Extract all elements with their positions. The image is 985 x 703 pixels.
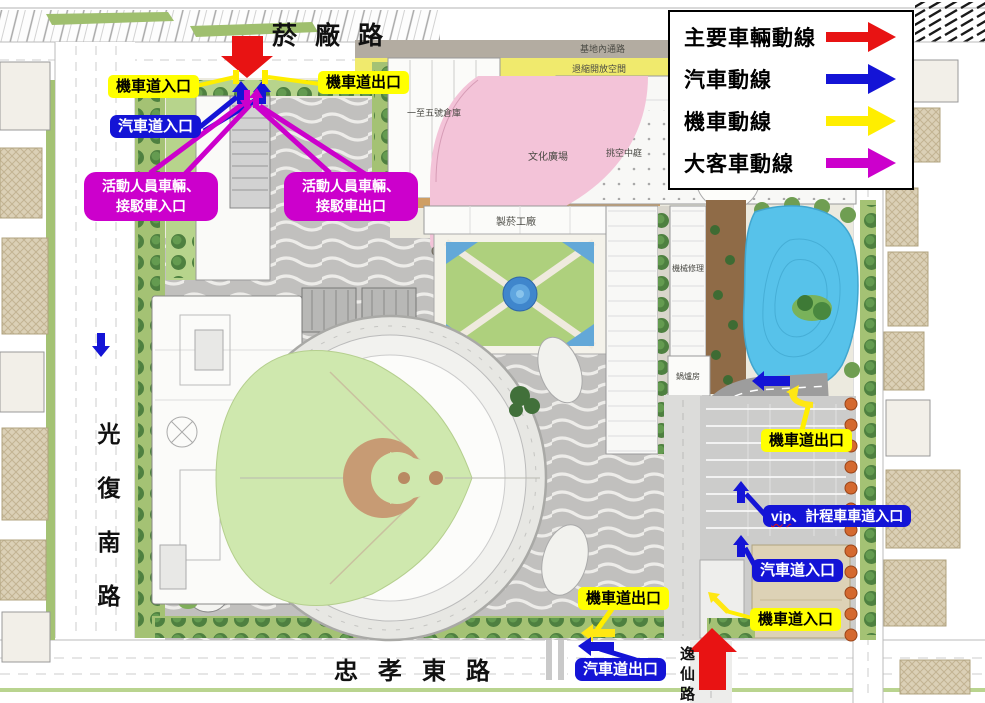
legend-row-motorcycle: 機車動線 xyxy=(684,106,898,136)
bus-exit-line1: 活動人員車輛、 xyxy=(302,178,400,194)
callout-east-moto-entry: 機車道入口 xyxy=(750,608,841,631)
vip-word: vip xyxy=(771,508,791,524)
label-atrium: 挑空中庭 xyxy=(606,146,642,159)
callout-south-car-exit: 汽車道出口 xyxy=(575,658,666,681)
legend-row-bus: 大客車動線 xyxy=(684,148,898,178)
callout-top-moto-entry: 機車道入口 xyxy=(108,75,199,98)
callout-east-car-entry: 汽車道入口 xyxy=(752,559,843,582)
red-arrow-icon xyxy=(826,22,898,52)
road-label-southeast: 逸仙路 xyxy=(676,646,697,703)
terrace-deck xyxy=(706,200,746,394)
label-boiler-room: 鍋爐房 xyxy=(676,371,700,382)
yellow-arrow-icon xyxy=(826,106,898,136)
bus-entry-line1: 活動人員車輛、 xyxy=(102,178,200,194)
label-culture-plaza: 文化廣場 xyxy=(528,148,568,163)
bus-entry-line2: 接駁車入口 xyxy=(116,198,186,214)
legend-label: 汽車動線 xyxy=(684,64,772,94)
label-machine-repair: 機械修理 xyxy=(672,263,704,274)
callout-bus-exit: 活動人員車輛、 接駁車出口 xyxy=(284,172,418,221)
legend-label: 機車動線 xyxy=(684,106,772,136)
callout-bus-entry: 活動人員車輛、 接駁車入口 xyxy=(84,172,218,221)
callout-top-car-entry: 汽車道入口 xyxy=(110,115,201,138)
road-label-north: 菸廠路 xyxy=(272,16,401,52)
label-internal-road: 基地內通路 xyxy=(580,42,625,55)
blue-arrow-icon xyxy=(826,64,898,94)
callout-top-moto-exit: 機車道出口 xyxy=(318,71,409,94)
traffic-circulation-plan: 菸廠路 光復南路 忠孝東路 逸仙路 基地內通路 退縮開放空間 一至五號倉庫 文化… xyxy=(0,0,985,703)
callout-east-moto-exit: 機車道出口 xyxy=(761,429,852,452)
road-label-west: 光復南路 xyxy=(90,422,124,638)
label-setback-space: 退縮開放空間 xyxy=(572,62,626,75)
legend-label: 主要車輛動線 xyxy=(684,22,816,52)
bus-exit-line2: 接駁車出口 xyxy=(316,198,386,214)
legend-row-car: 汽車動線 xyxy=(684,64,898,94)
road-label-south: 忠孝東路 xyxy=(334,651,510,686)
west-neighborhood xyxy=(0,62,55,662)
dome-stadium xyxy=(216,316,546,640)
label-tobacco-factory: 製菸工廠 xyxy=(496,213,536,228)
legend-box: 主要車輛動線 汽車動線 機車動線 大客車動線 xyxy=(668,10,914,190)
callout-south-moto-exit: 機車道出口 xyxy=(578,587,669,610)
legend-row-main-vehicle: 主要車輛動線 xyxy=(684,22,898,52)
legend-label: 大客車動線 xyxy=(684,148,794,178)
callout-vip-taxi-entry: vip、計程車車道入口 xyxy=(763,505,911,527)
magenta-arrow-icon xyxy=(826,148,898,178)
east-long-building xyxy=(606,206,674,456)
label-warehouses: 一至五號倉庫 xyxy=(407,106,461,119)
vip-rest: 、計程車車道入口 xyxy=(791,508,903,524)
